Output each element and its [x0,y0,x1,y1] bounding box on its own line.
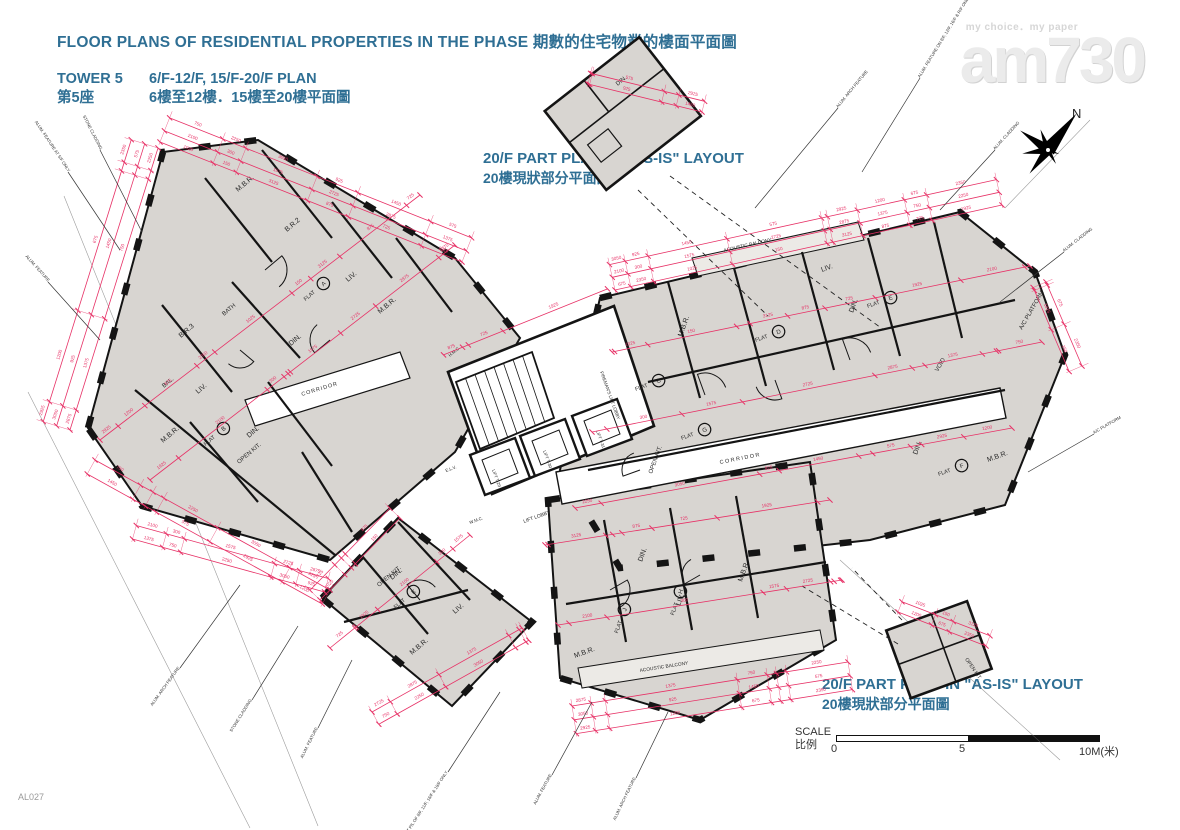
dimension-extension [995,173,1003,208]
dimension-extension [86,454,99,477]
leader-label: ALUM. FEATURE ON 8/F, 12/F, 16/F & R/F O… [917,0,971,79]
dimension-number: 675 [618,280,627,287]
dimension-number: 2100 [147,521,159,529]
dimension-tick [146,177,151,182]
dimension-tick [85,471,90,476]
dimension-number: 925 [335,176,344,184]
dimension-tick [220,136,225,141]
dimension-number: 750 [168,542,177,549]
dimension-number: 2925 [687,90,699,97]
dimension-number: 1200 [669,710,680,717]
dimension-tick [182,536,187,541]
dimension-tick [523,639,528,644]
dimension-number: 1375 [82,357,90,369]
dimension-number: 575 [133,149,140,158]
dimension-tick [74,407,79,412]
dimension-tick [605,286,610,291]
dimension-tick [102,316,107,321]
dimension-number: 675 [92,234,99,243]
dimension-number: 1375 [877,209,888,216]
dimension-number: 1575 [453,533,464,544]
dimension-number: 575 [814,673,823,679]
dimension-tick [157,139,162,144]
dimension-tick [423,232,428,237]
dimension-tick [1067,369,1072,374]
dimension-tick [526,638,531,643]
leader-label: ALUM. CLADDING [992,120,1021,151]
dimension-number: 925 [69,354,76,363]
dimension-tick [162,128,167,133]
dimension-tick [987,633,992,638]
leader-line [252,626,298,700]
dimension-tick [464,248,469,253]
dimension-tick [899,599,904,604]
dimension-tick [388,699,393,704]
dimension-tick [702,99,707,104]
dimension-number: 925 [631,251,640,258]
dimension-number: 2875 [575,696,586,703]
leader-label: ALUM. FEATURE [25,254,52,283]
dimension-number: 2100 [614,267,625,274]
dimension-number: 750 [118,243,125,252]
dimension-tick [130,497,135,502]
dimension-tick [130,536,135,541]
dimension-number: 300 [172,528,181,535]
dimension-number: 1025 [915,600,927,609]
dimension-tick [60,403,65,408]
dimension-tick [376,722,381,727]
dimension-tick [75,308,80,313]
dimension-tick [148,168,153,173]
dimension-tick [122,160,127,165]
leader-label: A/C PLATFORM [1092,415,1122,435]
dimension-extension [180,532,186,555]
dimension-number: 1575 [225,543,237,551]
leader-line [862,78,920,172]
dimension-tick [54,423,59,428]
leader-label: STONE CLADDING [82,114,104,151]
dimension-number: 2925 [580,724,591,731]
dimension-tick [129,137,134,142]
dimension-number: 2250 [811,659,822,666]
dimension-number: 1450 [105,237,113,249]
dimension-tick [272,561,277,566]
dimension-tick [513,645,518,650]
dimension-number: 300 [634,263,643,270]
leader-line [940,150,995,210]
dimension-number: 1450 [748,683,759,690]
dimension-number: 750 [381,711,391,719]
dimension-extension [903,193,911,228]
dimension-number: 2250 [221,556,233,564]
leader-label: ALUM. ARCH FEATURE [149,666,181,707]
room-label: E.L.V. [445,464,457,473]
dimension-number: 575 [448,222,457,230]
dimension-number: 925 [307,580,316,587]
dimension-tick [395,711,400,716]
leader-line [755,108,838,208]
leader-line [1028,434,1094,472]
dimension-tick [207,539,212,544]
dimension-tick [428,219,433,224]
leader-line [318,660,352,728]
dimension-extension [1066,363,1088,372]
dimension-number: 1925 [961,204,972,211]
room-label: LIFT LOBBY [523,509,552,525]
dimension-number: 575 [769,220,778,227]
leader-label: ALUM. FEATURE AT P/L OF 8/F, 11/F, 16/F … [385,770,449,830]
dimension-tick [142,141,147,146]
floor-plan-svg: DIN. OPEN KIT. M.B.R. B.R.2 BATH B.R.3 L… [0,0,1180,830]
dimension-tick [119,168,124,173]
dimension-tick [355,190,360,195]
dimension-number: 3050 [611,255,622,262]
dimension-number: 1200 [874,197,885,204]
dimension-number: 2725 [283,559,295,567]
dimension-number: 675 [1056,298,1064,307]
floor-plan-page: FLOOR PLANS OF RESIDENTIAL PROPERTIES IN… [0,0,1180,830]
dimension-tick [132,172,137,177]
dimension-number: 2350 [119,144,127,156]
leader-label: ALUM. CLADDING [1062,226,1094,253]
leader-label: ALUM. ARCH FEATURE [835,69,869,109]
dimension-number: 750 [193,120,202,128]
hairline [1005,120,1090,208]
part-plan-inset-top: DIN. [545,37,701,190]
flat-k-wing [322,518,532,706]
dimension-extension [608,258,616,293]
dimension-number: 1200 [911,610,923,619]
dimension-tick [1061,322,1066,327]
room-label: W.M.C. [469,515,484,525]
dimension-tick [135,164,140,169]
dimension-tick [167,115,172,120]
leader-label: ALUM. ARCH FEATURE [612,776,637,821]
dimension-number: 3050 [279,572,291,580]
dimension-tick [89,312,94,317]
dashed-line [852,568,902,620]
dimension-tick [1079,363,1084,368]
dimension-number: 2250 [958,192,969,199]
dimension-tick [47,399,52,404]
dimension-tick [41,419,46,424]
dimension-extension [159,111,172,144]
dimension-extension [925,188,933,223]
leader-line [448,692,500,772]
dimension-number: 3050 [51,408,59,420]
dimension-number: 750 [913,202,922,209]
leader-label: STONE CLADDING [228,697,253,733]
north-star-center [1046,148,1050,152]
dimension-extension [162,527,168,550]
dimension-tick [160,545,165,550]
inset-outline [545,37,701,190]
dimension-extension [647,249,655,284]
dimension-number: 675 [910,189,919,196]
dimension-extension [132,519,138,542]
leader-line [552,702,592,775]
dimension-number: 1450 [681,239,692,246]
dimension-number: 2350 [636,276,647,283]
leader-label: ALUM. FEATURE [532,773,553,805]
dimension-tick [92,457,97,462]
dimension-tick [155,145,160,150]
dimension-number: 2925 [38,404,46,416]
dimension-number: 2250 [146,152,154,164]
leader-label: ALUM. FEATURE [299,726,319,759]
dimension-number: 1200 [55,349,63,361]
dimension-number: 2925 [836,205,847,212]
dimension-tick [134,523,139,528]
dimension-number: 2350 [815,687,826,694]
dimension-tick [178,550,183,555]
dimension-tick [895,609,900,614]
dimension-tick [293,581,298,586]
dimension-tick [369,709,374,714]
dimension-number: 2875 [65,413,73,425]
dimension-number: 1375 [143,535,155,543]
leader-label: ALUM. FEATURE AT 5/F ONLY [34,120,72,173]
dimension-tick [469,235,474,240]
leader-line [180,585,240,668]
dimension-number: 675 [752,697,761,703]
dimension-tick [67,427,72,432]
dimension-tick [164,531,169,536]
